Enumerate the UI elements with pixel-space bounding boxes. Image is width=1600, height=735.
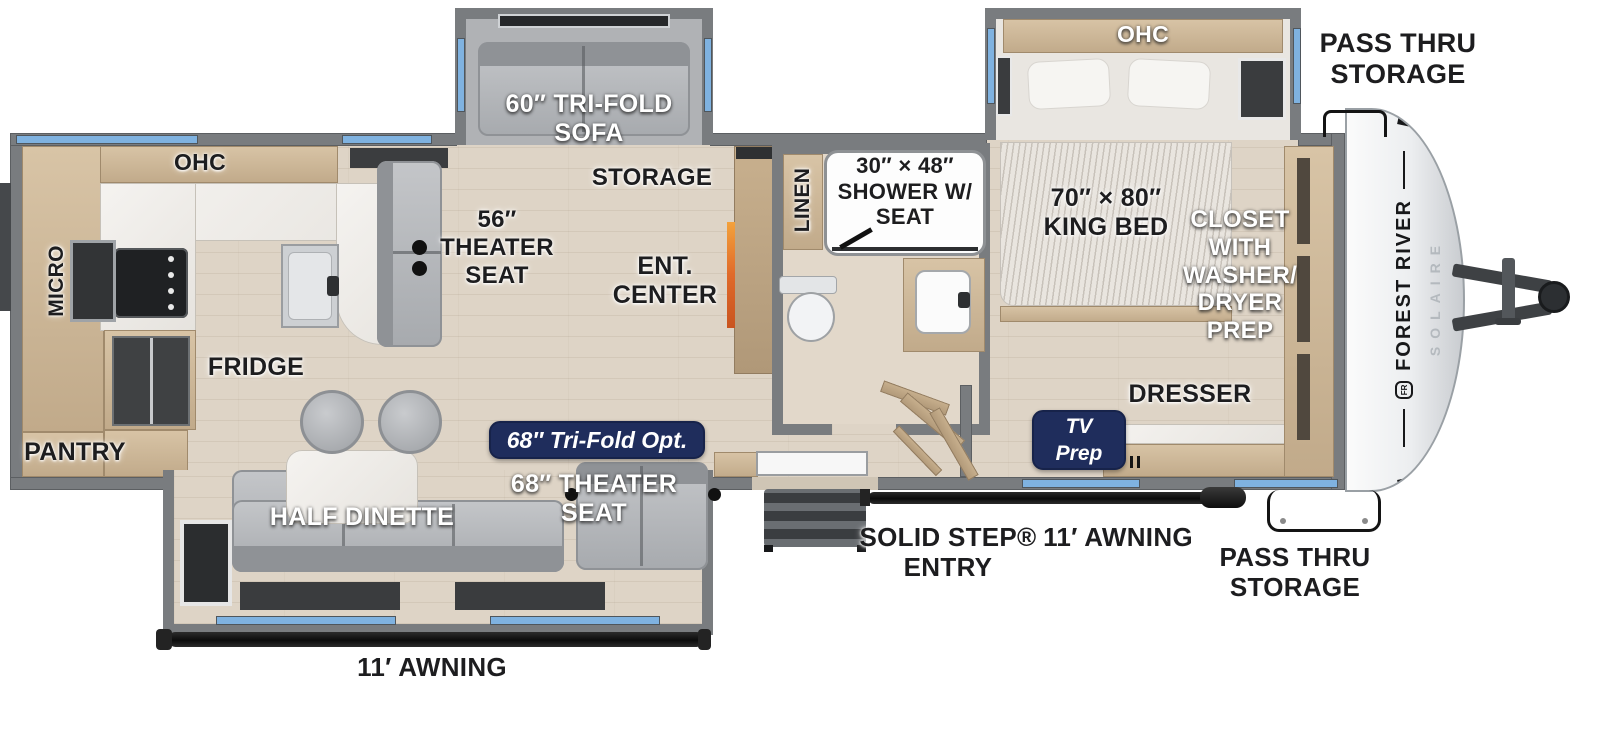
- model-name: SOLAIRE: [1427, 238, 1443, 356]
- bedroom-slide-window-left: [996, 56, 1012, 116]
- entry-door-open: [756, 451, 868, 476]
- dinette-slide-window-b2: [490, 616, 660, 625]
- model-lockup: SOLAIRE: [1426, 167, 1444, 427]
- slide-knob-right: [708, 488, 721, 501]
- step-foot-left: [764, 545, 773, 552]
- label-awning-right: 11′ AWNING: [1043, 522, 1193, 552]
- label-awning-left: 11′ AWNING: [357, 652, 507, 682]
- brand-lockup: FR FOREST RIVER: [1391, 144, 1417, 454]
- slide-mat-1: [240, 582, 400, 610]
- microwave: [70, 240, 116, 322]
- cap-accent-bottom: [1397, 465, 1465, 492]
- closet-door-1: [1297, 158, 1310, 244]
- label-solid-step: SOLID STEP® ENTRY: [859, 522, 1036, 582]
- rv-floorplan: FR FOREST RIVER SOLAIRE 60″ TRI-FOLD SOF…: [0, 0, 1600, 735]
- label-dresser: DRESSER: [1129, 380, 1252, 409]
- dresser-top: [1103, 424, 1285, 444]
- awning-left-bar: [168, 632, 704, 647]
- label-ent-center: ENT. CENTER: [613, 252, 718, 310]
- bath-door-opening: [832, 424, 896, 435]
- door-screw-left: [1280, 518, 1286, 524]
- label-micro: MICRO: [45, 245, 69, 317]
- label-tri-fold-sofa: 60″ TRI-FOLD SOFA: [506, 90, 673, 148]
- closet-door-3: [1297, 354, 1310, 440]
- cupholder-2: [412, 261, 427, 276]
- sofa-slide-window-left: [457, 38, 465, 112]
- awning-right-roller: [1200, 487, 1246, 508]
- pillow-left: [1027, 58, 1111, 110]
- label-linen: LINEN: [791, 168, 815, 233]
- label-fridge: FRIDGE: [208, 353, 304, 382]
- kitchen-faucet: [327, 276, 339, 296]
- bath-faucet: [958, 292, 970, 308]
- burner-4: [168, 304, 174, 310]
- hitch-jack: [1502, 258, 1515, 322]
- fireplace: [727, 222, 735, 328]
- ent-center-tv: [736, 147, 772, 159]
- window-top-1: [16, 135, 198, 144]
- pass-thru-door-bottom: [1267, 490, 1381, 532]
- dinette-slide-window-b1: [216, 616, 396, 625]
- badge-tv-prep: TV Prep: [1032, 410, 1126, 470]
- closet-door-2: [1297, 256, 1310, 342]
- burner-1: [168, 256, 174, 262]
- label-theater-68: 68″ THEATER SEAT: [511, 470, 677, 528]
- dresser-vent-1: [1130, 456, 1133, 468]
- fridge-door-split: [150, 338, 153, 424]
- badge-tri-fold-opt: 68″ Tri-Fold Opt.: [489, 421, 705, 459]
- hitch-jack-foot: [1495, 318, 1521, 325]
- hitch-coupler: [1538, 281, 1570, 313]
- label-storage: STORAGE: [592, 164, 712, 192]
- theater-seat-56-backrest: [377, 161, 393, 347]
- dinette-stool-2: [378, 390, 442, 454]
- ent-center-cabinet: [734, 146, 774, 374]
- sofa-slide-window-right: [704, 38, 712, 112]
- brand-rule-left: [1403, 409, 1405, 447]
- awning-left-cap-l: [156, 629, 172, 650]
- rear-bumper: [0, 183, 11, 311]
- shower-track: [832, 247, 978, 251]
- label-shower: 30″ × 48″ SHOWER W/ SEAT: [838, 153, 973, 230]
- sofa-slide-window-top: [498, 14, 670, 28]
- dinette-bench-backrest: [232, 546, 564, 572]
- label-closet: CLOSET WITH WASHER/ DRYER PREP: [1183, 206, 1297, 345]
- label-ohc-bedroom: OHC: [1117, 21, 1169, 48]
- bedroom-slide-window-right: [1238, 58, 1286, 120]
- dinette-stool-1: [300, 390, 364, 454]
- awning-right-bracket: [860, 489, 870, 506]
- window-top-2: [342, 135, 432, 144]
- stove-cooktop: [114, 248, 188, 318]
- cap-accent-top: [1397, 108, 1465, 139]
- slide-mat-2: [455, 582, 605, 610]
- label-king-bed: 70″ × 80″ KING BED: [1044, 184, 1169, 242]
- label-ohc-kitchen: OHC: [174, 149, 226, 176]
- forest-river-crest-icon: FR: [1395, 381, 1413, 399]
- awning-left-cap-r: [698, 629, 711, 650]
- wall-bottom-a: [10, 477, 165, 490]
- bedroom-slide-win-right: [1293, 28, 1301, 104]
- brand-rule-right: [1403, 151, 1405, 189]
- label-pantry: PANTRY: [24, 438, 126, 467]
- pass-thru-door-top: [1323, 110, 1387, 137]
- kitchen-sink-basin: [288, 252, 332, 320]
- pillow-right: [1127, 58, 1211, 110]
- door-screw-right: [1362, 518, 1368, 524]
- brand-name: FOREST RIVER: [1393, 199, 1416, 371]
- awning-right-bar: [868, 492, 1208, 504]
- bedroom-slide-win-left: [987, 28, 995, 104]
- dresser-vent-2: [1137, 456, 1140, 468]
- label-pass-thru-top: PASS THRU STORAGE: [1320, 28, 1477, 91]
- burner-3: [168, 288, 174, 294]
- entry-side-cabinet: [714, 452, 758, 477]
- label-half-dinette: HALF DINETTE: [270, 503, 454, 532]
- solid-step-stairs: [764, 489, 866, 547]
- label-theater-56: 56″ THEATER SEAT: [440, 206, 554, 289]
- window-bottom-1: [1022, 479, 1140, 488]
- cupholder-1: [412, 240, 427, 255]
- label-pass-thru-bottom: PASS THRU STORAGE: [1219, 542, 1370, 602]
- burner-2: [168, 272, 174, 278]
- dinette-slide-window-left: [180, 520, 232, 606]
- window-bottom-2: [1234, 479, 1338, 488]
- toilet-bowl: [787, 292, 835, 342]
